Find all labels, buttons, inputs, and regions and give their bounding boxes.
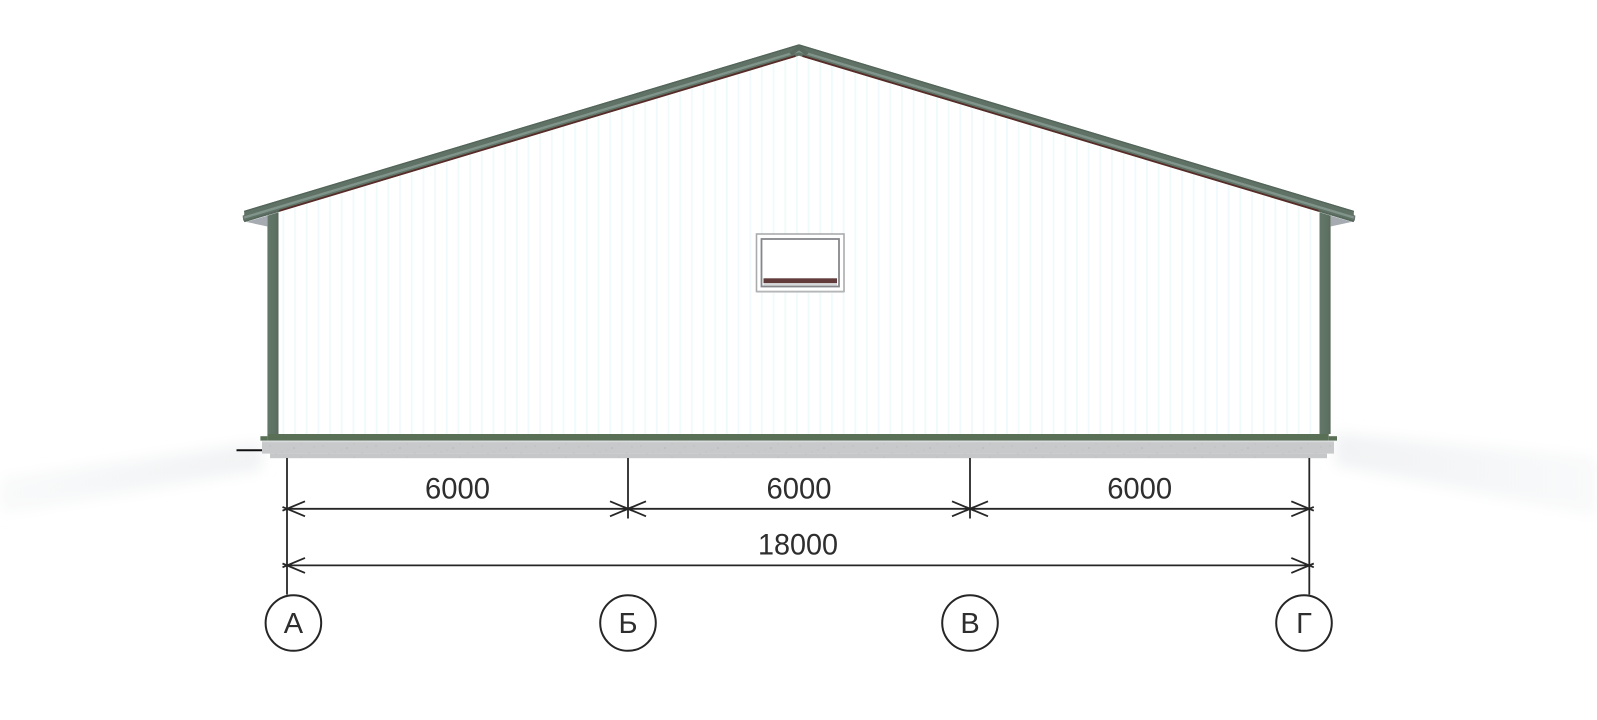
svg-text:6000: 6000 bbox=[425, 473, 490, 506]
svg-text:6000: 6000 bbox=[767, 473, 832, 506]
svg-text:6000: 6000 bbox=[1107, 473, 1172, 506]
svg-text:Б: Б bbox=[618, 608, 637, 640]
svg-text:18000: 18000 bbox=[758, 529, 838, 562]
svg-text:Г: Г bbox=[1296, 608, 1312, 640]
svg-text:А: А bbox=[284, 608, 304, 640]
svg-text:В: В bbox=[960, 608, 979, 640]
